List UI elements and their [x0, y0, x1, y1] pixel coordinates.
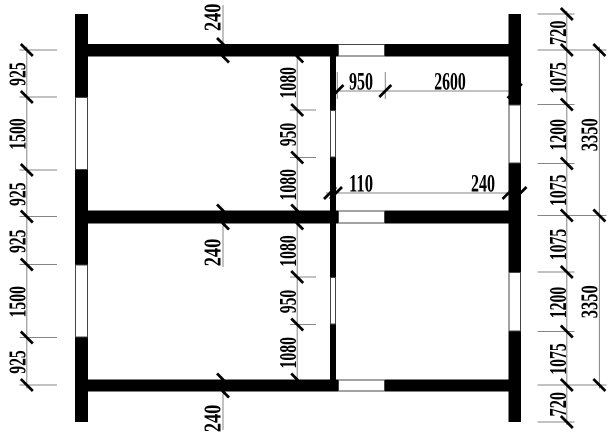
svg-text:2600: 2600 [434, 69, 466, 96]
svg-text:1500: 1500 [4, 118, 31, 150]
svg-text:1075: 1075 [545, 174, 572, 206]
svg-text:3350: 3350 [576, 118, 603, 151]
svg-text:950: 950 [275, 123, 302, 147]
svg-text:240: 240 [471, 171, 495, 198]
svg-text:1080: 1080 [275, 337, 302, 369]
svg-text:1080: 1080 [275, 169, 302, 201]
svg-text:1080: 1080 [275, 67, 302, 99]
svg-text:925: 925 [4, 230, 31, 254]
svg-text:1200: 1200 [545, 119, 572, 151]
svg-text:3350: 3350 [576, 285, 603, 318]
svg-text:1075: 1075 [545, 62, 572, 94]
svg-text:1075: 1075 [545, 343, 572, 375]
svg-text:1075: 1075 [545, 229, 572, 261]
svg-text:240: 240 [200, 4, 227, 32]
svg-text:1500: 1500 [4, 286, 31, 318]
svg-text:925: 925 [4, 62, 31, 86]
svg-text:950: 950 [349, 69, 373, 96]
svg-text:110: 110 [349, 171, 373, 198]
svg-text:950: 950 [275, 290, 302, 314]
svg-text:1200: 1200 [545, 287, 572, 319]
svg-text:720: 720 [545, 392, 572, 417]
svg-text:1080: 1080 [275, 235, 302, 267]
svg-text:720: 720 [545, 20, 572, 45]
svg-text:925: 925 [4, 350, 31, 374]
svg-text:240: 240 [200, 239, 227, 267]
svg-text:925: 925 [4, 182, 31, 206]
svg-text:240: 240 [200, 405, 227, 433]
